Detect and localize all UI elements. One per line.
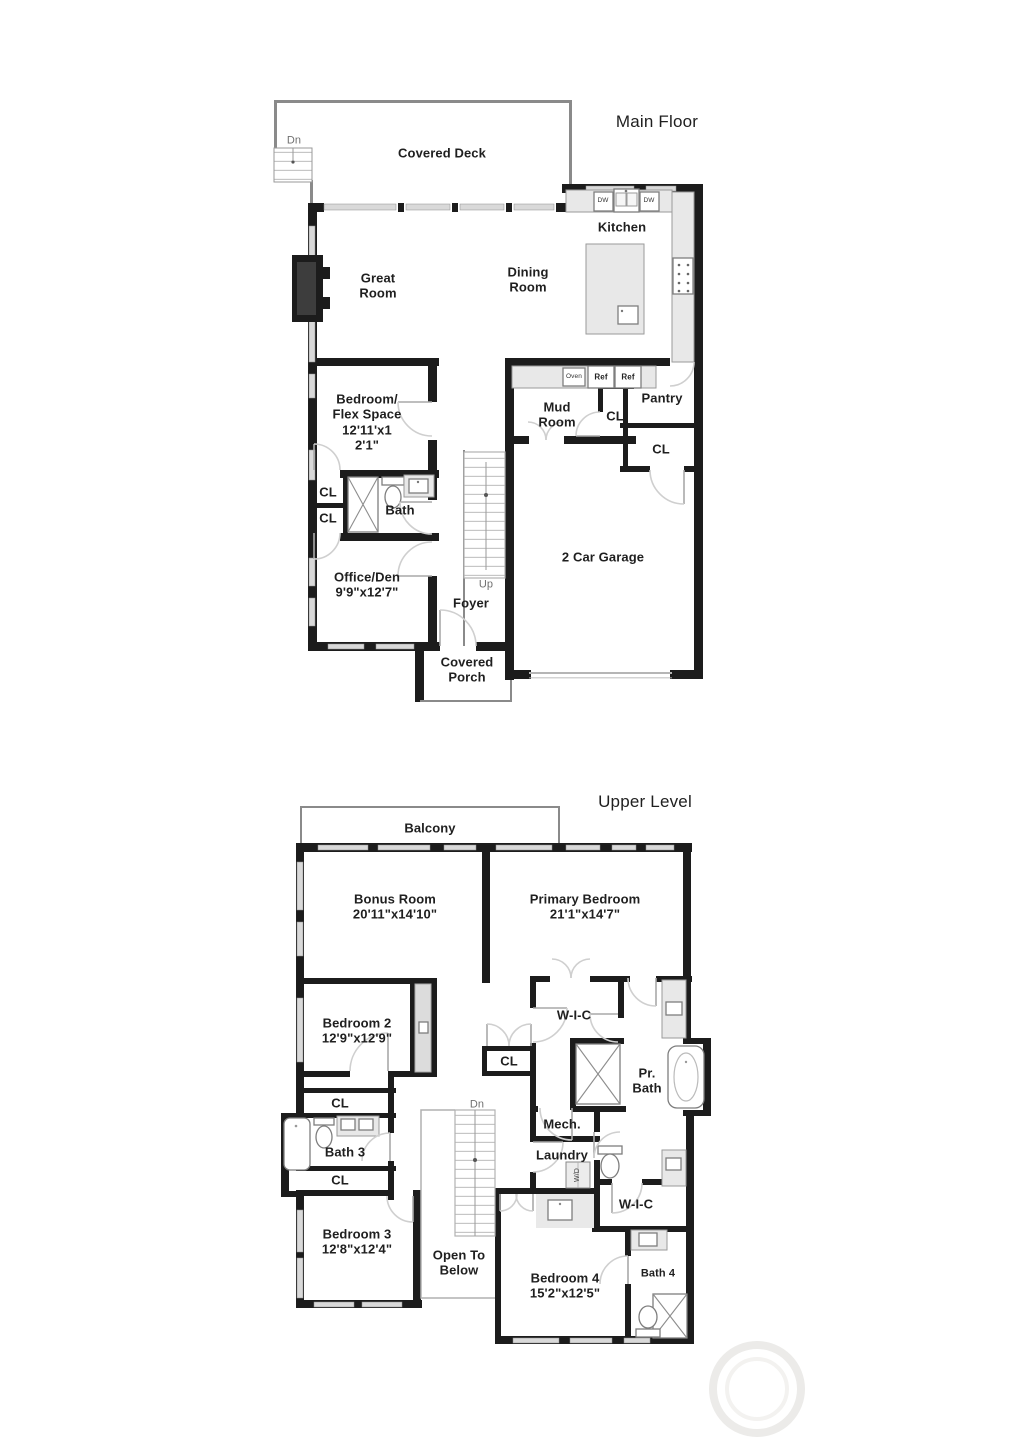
- bedroom2-label: Bedroom 2 12'9"x12'9": [322, 1016, 392, 1047]
- bath3-vanity: [337, 1116, 379, 1136]
- kitchen-island: [586, 244, 644, 334]
- covered-deck-label: Covered Deck: [398, 145, 486, 160]
- ref-label-1: Ref: [594, 372, 607, 381]
- deck-stairs: [274, 148, 312, 182]
- oven-label: Oven: [566, 373, 582, 381]
- primary-bath-label: Pr. Bath: [632, 1066, 661, 1097]
- wic1-label: W-I-C: [557, 1007, 591, 1022]
- pantry-closet-label: CL: [652, 441, 670, 456]
- bonus-room-label: Bonus Room 20'11"x14'10": [353, 892, 437, 923]
- primary-shower-icon: [576, 1044, 620, 1104]
- hall-closet-lower-label: CL: [319, 510, 337, 525]
- washer-dryer-label: W/D: [574, 1168, 582, 1182]
- wic2-label: W-I-C: [619, 1196, 653, 1211]
- laundry-label: Laundry: [536, 1147, 588, 1162]
- dishwasher-label-1: DW: [597, 197, 608, 205]
- bath4-label: Bath 4: [641, 1268, 675, 1281]
- deck-stairs-dn-label: Dn: [287, 135, 301, 148]
- bath-sink-icon: [404, 475, 434, 497]
- stairs-up: [463, 450, 505, 646]
- hall-closet-upper-label: CL: [319, 484, 337, 499]
- garage-label: 2 Car Garage: [562, 549, 644, 564]
- fireplace-icon: [292, 255, 330, 322]
- upper-level-doors: [350, 959, 656, 1284]
- bath3-closet-top-label: CL: [331, 1095, 349, 1110]
- hall-closet-label: CL: [500, 1053, 518, 1068]
- bedroom-flex-label: Bedroom/ Flex Space 12'11'x1 2'1": [333, 391, 402, 452]
- bath4-vanity: [631, 1230, 667, 1250]
- kitchen-label: Kitchen: [598, 219, 646, 234]
- dishwasher-label-2: DW: [643, 197, 654, 205]
- garage-door: [529, 672, 672, 679]
- bath3-closet-bottom-label: CL: [331, 1172, 349, 1187]
- shower-icon: [348, 477, 378, 532]
- primary-toilet-icon: [598, 1146, 622, 1178]
- upper-level-title: Upper Level: [598, 792, 692, 812]
- bathtub-icon: [668, 1046, 704, 1108]
- covered-porch-label: Covered Porch: [441, 655, 494, 686]
- bath-label: Bath: [385, 502, 414, 517]
- mud-room-label: Mud Room: [538, 400, 575, 431]
- balcony-label: Balcony: [404, 820, 455, 835]
- bath3-label: Bath 3: [325, 1144, 365, 1159]
- watermark-logo: [713, 1345, 801, 1433]
- bedroom4-label: Bedroom 4 15'2"x12'5": [530, 1271, 600, 1302]
- bath3-tub-icon: [284, 1118, 310, 1170]
- open-to-below-label: Open To Below: [433, 1248, 485, 1279]
- dining-room-label: Dining Room: [507, 265, 548, 296]
- stairs-down: [455, 1110, 495, 1236]
- wardrobe-closet: [415, 984, 431, 1072]
- great-room-label: Great Room: [359, 271, 396, 302]
- mech-label: Mech.: [543, 1116, 580, 1131]
- office-den-label: Office/Den 9'9"x12'7": [334, 570, 400, 601]
- primary-bedroom-label: Primary Bedroom 21'1"x14'7": [530, 892, 641, 923]
- bedroom3-label: Bedroom 3 12'8"x12'4": [322, 1227, 392, 1258]
- mud-closet-label: CL: [606, 408, 624, 423]
- floor-plan-canvas: [0, 0, 1014, 1439]
- floor-plan-page: Main Floor Covered Deck Dn Great Room Di…: [0, 0, 1014, 1439]
- ref-label-2: Ref: [621, 372, 634, 381]
- pantry-label: Pantry: [641, 390, 682, 405]
- main-floor-title: Main Floor: [616, 112, 698, 132]
- stairs-up-label: Up: [479, 579, 493, 592]
- kitchen-sink-icon: [614, 189, 639, 212]
- foyer-label: Foyer: [453, 595, 489, 610]
- stairs-dn-label: Dn: [470, 1099, 484, 1112]
- cooktop-icon: [673, 258, 693, 294]
- hall-floor-patch: [536, 1194, 594, 1228]
